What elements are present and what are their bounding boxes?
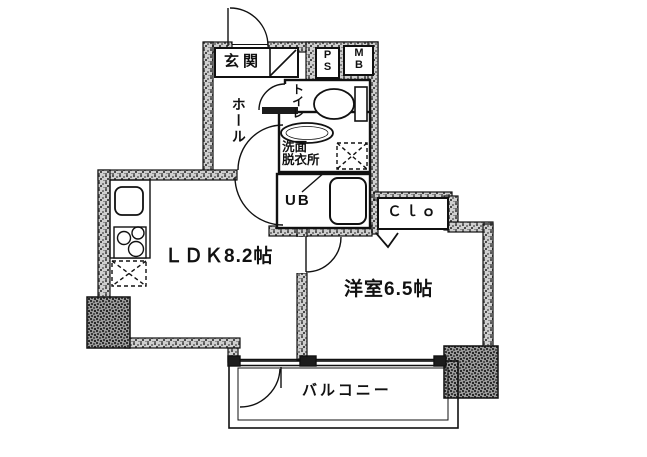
unit-bath-label: UB xyxy=(285,193,311,209)
closet-folding-door-chevron xyxy=(376,233,398,247)
entrance-door-swing xyxy=(228,8,268,46)
ldk-label: ＬＤＫ8.2帖 xyxy=(164,247,273,267)
genkan-label: 玄関 xyxy=(224,54,262,70)
refrigerator-space xyxy=(112,261,146,286)
washroom-label: 洗面 脱衣所 xyxy=(282,141,320,167)
toilet-tank xyxy=(355,87,367,121)
toilet-door-swing xyxy=(259,84,285,110)
western-room-door-swing xyxy=(306,237,341,272)
kitchen-sink xyxy=(115,187,143,215)
pillar-bottom-left xyxy=(87,297,130,348)
meter-box-label: M B xyxy=(352,48,366,71)
pipe-space-label: P S xyxy=(321,50,334,73)
balcony-door-swing xyxy=(240,367,281,407)
gas-stove xyxy=(114,227,146,258)
pillar-bottom-right xyxy=(444,346,498,398)
balcony-label: バルコニー xyxy=(302,383,392,399)
hall-label: ホール xyxy=(231,97,246,145)
toilet-bowl xyxy=(314,89,354,119)
floor-plan: 玄関 P S M B トイレ ホール 洗面 脱衣所 UB Ｃｌｏ ＬＤＫ8.2帖… xyxy=(0,0,647,457)
closet-label: Ｃｌｏ xyxy=(378,204,448,219)
wash-basin-inner xyxy=(286,127,328,140)
western-room-label: 洋室6.5帖 xyxy=(344,280,433,300)
toilet-doorway xyxy=(283,84,289,108)
toilet-label: トイレ xyxy=(291,83,304,119)
bathtub xyxy=(330,178,366,224)
ldk-door-swing xyxy=(235,177,283,225)
